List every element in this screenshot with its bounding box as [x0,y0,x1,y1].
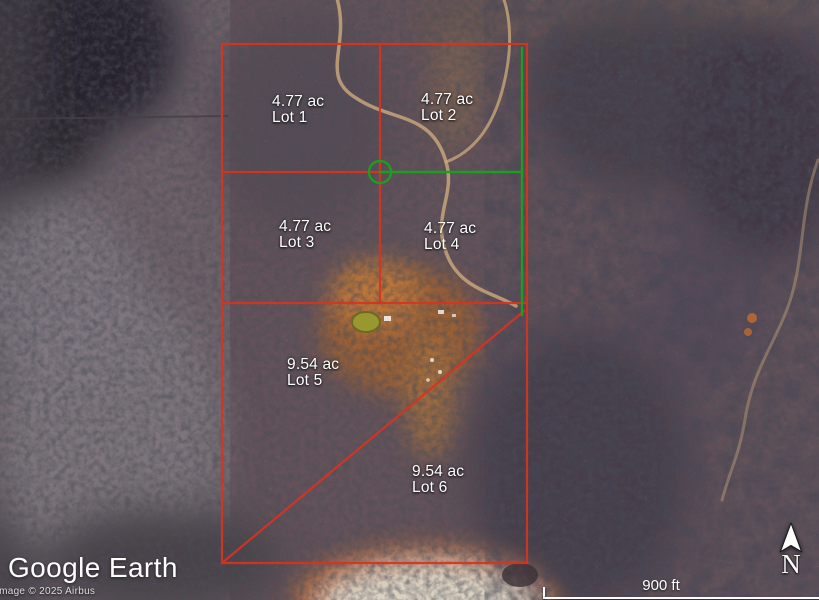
lot-1-label: 4.77 ac Lot 1 [272,94,324,126]
scale-bar-label: 900 ft [543,577,779,594]
lot-1-acreage: 4.77 ac [272,94,324,110]
green-lot-lines [369,48,522,315]
lot-2-label: 4.77 ac Lot 2 [421,92,473,124]
lot-5-name: Lot 5 [287,373,339,389]
lot-6-name: Lot 6 [412,480,464,496]
lot-2-acreage: 4.77 ac [421,92,473,108]
north-arrow-icon [775,522,807,554]
lot-5-label: 9.54 ac Lot 5 [287,357,339,389]
lot-4-label: 4.77 ac Lot 4 [424,221,476,253]
lot-4-acreage: 4.77 ac [424,221,476,237]
lot-3-name: Lot 3 [279,235,331,251]
lot-5-acreage: 9.54 ac [287,357,339,373]
google-earth-logo: Google Earth [8,552,178,584]
lot-3-label: 4.77 ac Lot 3 [279,219,331,251]
lot-1-name: Lot 1 [272,110,324,126]
red-lot-lines [222,44,527,563]
lot-6-acreage: 9.54 ac [412,464,464,480]
imagery-copyright: Image © 2025 Airbus [0,586,95,597]
lot-2-name: Lot 2 [421,108,473,124]
google-earth-satellite-view[interactable]: 4.77 ac Lot 1 4.77 ac Lot 2 4.77 ac Lot … [0,0,819,600]
lot5-lot6-diagonal-line [222,311,524,563]
lot-3-acreage: 4.77 ac [279,219,331,235]
scale-bar-line [543,597,819,599]
lot-6-label: 9.54 ac Lot 6 [412,464,464,496]
lot-4-name: Lot 4 [424,237,476,253]
lot-boundary-overlay [0,0,819,600]
north-compass: N [768,522,814,580]
